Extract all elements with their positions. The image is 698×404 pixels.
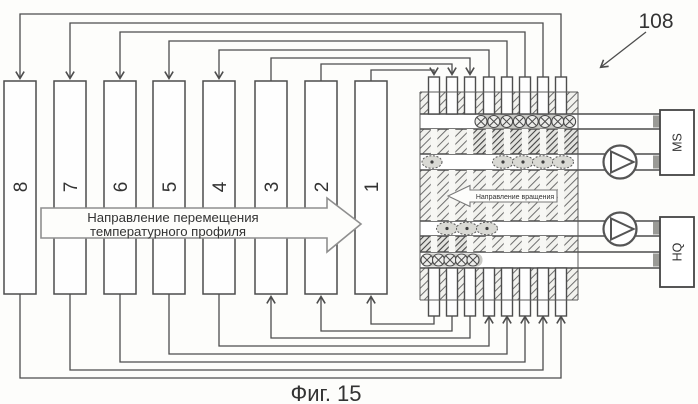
patent-figure-page: 8 7 6 5 4 3 2 1 Направление перемещения …	[0, 0, 698, 404]
bar-label: 3	[262, 182, 283, 193]
dense-hatch-zone-lower	[420, 236, 472, 252]
hq-box: HQ	[660, 217, 694, 287]
top-wiring-pins-to-bars	[20, 14, 561, 78]
bottom-wiring-bars-to-pins	[20, 294, 561, 378]
pump-icon-lower	[604, 213, 637, 246]
bar-label: 6	[111, 182, 132, 193]
figure-caption: Фиг. 15	[290, 381, 361, 404]
reference-108: 108	[601, 10, 674, 67]
temperature-arrow-text-line1: Направление перемещения	[87, 210, 258, 225]
hq-box-label: HQ	[671, 242, 685, 261]
pump-icon-upper	[604, 146, 637, 179]
bar-label: 4	[210, 181, 231, 192]
bar-label: 7	[61, 182, 82, 193]
reference-108-pointer	[601, 32, 646, 67]
bearing-chain-upper	[475, 115, 576, 129]
ms-box: MS	[660, 110, 694, 175]
bar-label: 5	[160, 182, 181, 193]
bar-label: 2	[312, 182, 333, 193]
bar-label: 8	[11, 182, 32, 193]
thermal-element-bar-labels: 8 7 6 5 4 3 2 1	[11, 181, 383, 192]
reference-108-label: 108	[638, 10, 673, 33]
rotary-heat-block: Направление вращения	[420, 77, 660, 316]
bar-label: 1	[362, 182, 383, 193]
figure-15-diagram: 8 7 6 5 4 3 2 1 Направление перемещения …	[0, 0, 698, 404]
ms-box-label: MS	[671, 133, 685, 152]
rotation-arrow-text: Направление вращения	[476, 194, 555, 201]
seal-chain-channel3	[437, 222, 498, 235]
bearing-chain-lower	[421, 254, 483, 267]
temperature-arrow-text-line2: температурного профиля	[90, 224, 246, 239]
